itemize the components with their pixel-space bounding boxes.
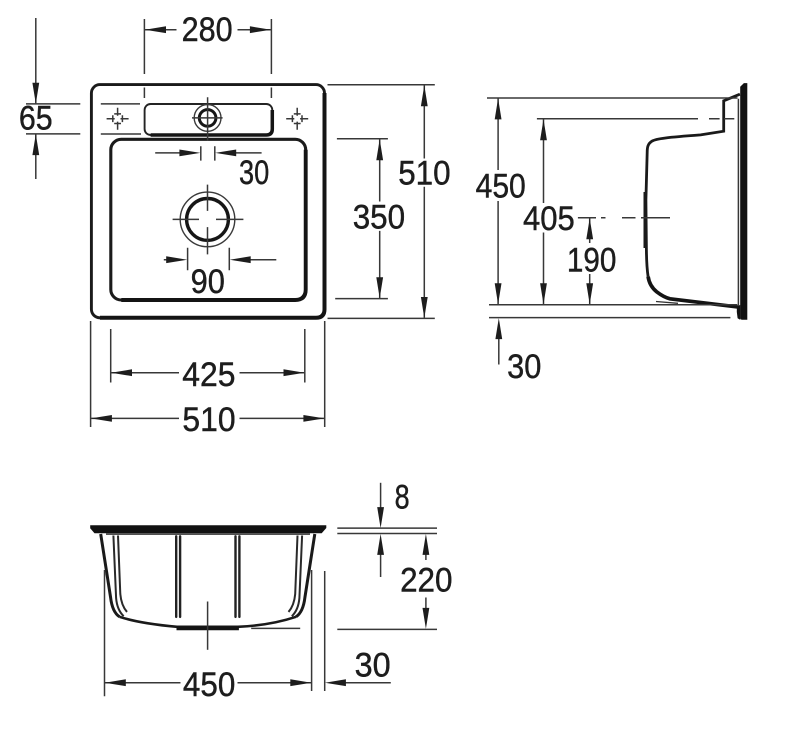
svg-text:405: 405 xyxy=(523,200,575,238)
svg-text:510: 510 xyxy=(182,401,235,439)
svg-text:190: 190 xyxy=(567,242,617,280)
svg-text:8: 8 xyxy=(395,479,410,517)
svg-text:450: 450 xyxy=(183,666,235,704)
svg-text:350: 350 xyxy=(353,198,405,236)
svg-text:220: 220 xyxy=(400,561,452,599)
svg-text:90: 90 xyxy=(191,263,225,301)
svg-text:65: 65 xyxy=(19,100,53,138)
svg-text:510: 510 xyxy=(398,155,450,193)
svg-text:425: 425 xyxy=(182,356,235,394)
svg-text:450: 450 xyxy=(476,167,526,205)
svg-text:280: 280 xyxy=(182,11,233,49)
svg-text:30: 30 xyxy=(355,646,391,684)
svg-text:30: 30 xyxy=(507,348,541,386)
svg-text:30: 30 xyxy=(239,154,269,192)
